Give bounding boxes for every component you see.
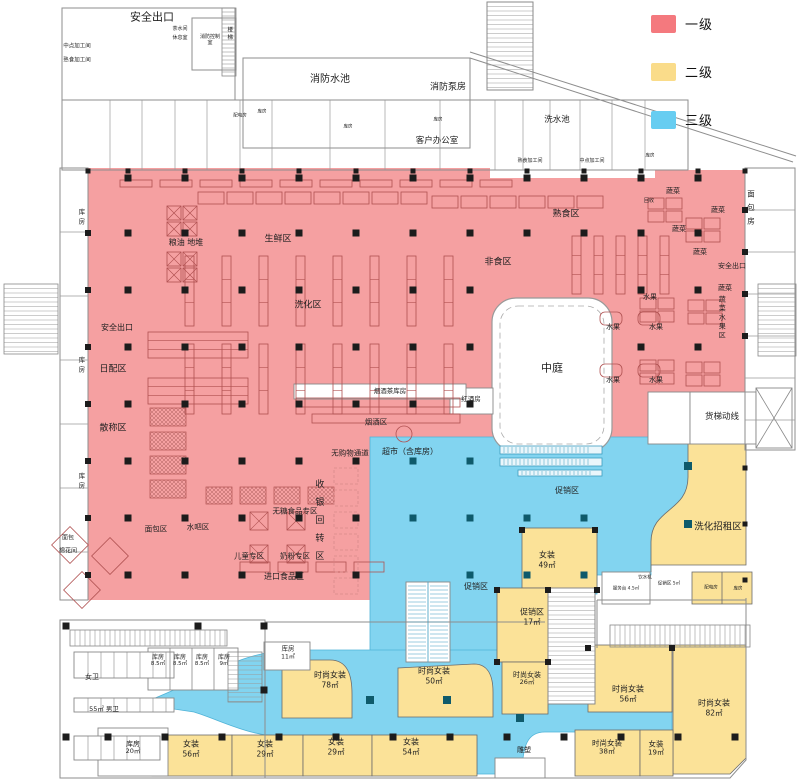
column (296, 401, 303, 408)
column (592, 527, 598, 533)
column (86, 169, 91, 174)
column (516, 714, 524, 722)
column (354, 169, 359, 174)
shop-promo17 (497, 588, 548, 662)
column (239, 344, 246, 351)
column (410, 230, 417, 237)
shop-ssnz26 (502, 662, 548, 714)
deco (150, 408, 186, 426)
column (182, 515, 189, 522)
column (742, 249, 748, 255)
column (684, 462, 692, 470)
column (638, 344, 645, 351)
column (494, 659, 500, 665)
column (125, 287, 132, 294)
deco (150, 480, 186, 498)
column (353, 401, 360, 408)
column (296, 344, 303, 351)
column (695, 344, 702, 351)
deco (206, 487, 232, 504)
legend-label-level-2: 二级 (685, 62, 713, 81)
column (261, 623, 268, 630)
column (519, 527, 525, 533)
column (669, 645, 675, 651)
legend: 一级 二级 三级 (651, 14, 713, 129)
column (525, 169, 530, 174)
atrium-courtyard (492, 298, 612, 452)
column (182, 175, 189, 182)
column (467, 572, 474, 579)
column (467, 230, 474, 237)
column (585, 645, 591, 651)
column (296, 175, 303, 182)
column (85, 230, 91, 236)
column (545, 587, 551, 593)
shop-ssnz82 (673, 645, 746, 774)
shop-ssnz38 (575, 730, 640, 776)
column (353, 458, 360, 465)
column (524, 572, 531, 579)
column (239, 175, 246, 182)
column (594, 587, 600, 593)
column (297, 169, 302, 174)
column (182, 287, 189, 294)
column (468, 169, 473, 174)
column (582, 169, 587, 174)
column (183, 169, 188, 174)
shop-nz29b (303, 735, 372, 776)
shop-ssnz50 (398, 664, 493, 717)
column (63, 623, 70, 630)
column (126, 169, 131, 174)
deco (52, 527, 89, 564)
storeroom-11-box (264, 642, 310, 670)
column (545, 659, 551, 665)
column (467, 458, 474, 465)
column (353, 515, 360, 522)
freight-route-box (690, 392, 756, 444)
column (182, 458, 189, 465)
column (581, 175, 588, 182)
legend-swatch-level-1 (651, 15, 676, 33)
deco (150, 456, 186, 474)
column (390, 734, 397, 741)
column (581, 572, 588, 579)
deco (308, 487, 334, 504)
column (695, 287, 702, 294)
column (638, 287, 645, 294)
escalator (500, 446, 602, 454)
wc-stall-row-2 (74, 698, 174, 712)
column (85, 458, 91, 464)
column (638, 175, 645, 182)
column (410, 175, 417, 182)
column (581, 515, 588, 522)
column (695, 230, 702, 237)
column (467, 175, 474, 182)
column (467, 515, 474, 522)
column (743, 466, 748, 471)
column (504, 734, 511, 741)
tobacco-storeroom-box (294, 384, 466, 399)
column (353, 572, 360, 579)
column (524, 175, 531, 182)
column (239, 515, 246, 522)
deco (274, 487, 300, 504)
column (467, 287, 474, 294)
column (219, 734, 226, 741)
deco (150, 432, 186, 450)
column (638, 230, 645, 237)
sculpture-recess (495, 758, 545, 778)
column (353, 287, 360, 294)
column (675, 734, 682, 741)
floor-plan: 一级 二级 三级 安全出口中点加工间熟食加工间茶水间休息室消防控制室楼梯消防水池… (0, 0, 800, 780)
column (333, 734, 340, 741)
wc-stall-row-1 (74, 652, 174, 678)
column (411, 169, 416, 174)
column (125, 230, 132, 237)
column (240, 169, 245, 174)
column (618, 734, 625, 741)
shop-nz19 (640, 730, 673, 776)
column (85, 572, 91, 578)
stair (4, 284, 58, 354)
escalator (500, 458, 602, 466)
column (581, 230, 588, 237)
column (296, 572, 303, 579)
column (743, 522, 748, 527)
service-room-box (602, 572, 650, 604)
column (467, 401, 474, 408)
column (561, 734, 568, 741)
column (524, 515, 531, 522)
column (239, 458, 246, 465)
column (443, 696, 451, 704)
column (276, 734, 283, 741)
column (125, 344, 132, 351)
column (742, 333, 748, 339)
column (261, 687, 268, 694)
column (353, 344, 360, 351)
cart-room-box (648, 392, 690, 444)
legend-label-level-1: 一级 (685, 14, 713, 33)
deco (240, 487, 266, 504)
column (524, 230, 531, 237)
column (195, 623, 202, 630)
column (696, 169, 701, 174)
shop-nz29a (232, 735, 303, 776)
column (410, 287, 417, 294)
column (85, 401, 91, 407)
column (239, 572, 246, 579)
column (639, 169, 644, 174)
column (125, 175, 132, 182)
column (125, 572, 132, 579)
column (742, 207, 748, 213)
column (296, 287, 303, 294)
column (467, 344, 474, 351)
column (366, 696, 374, 704)
column (494, 587, 500, 593)
column (162, 734, 169, 741)
column (182, 344, 189, 351)
column (410, 401, 417, 408)
escalator (518, 470, 602, 476)
column (732, 734, 739, 741)
column (410, 458, 417, 465)
column (296, 230, 303, 237)
column (85, 515, 91, 521)
column (85, 287, 91, 293)
legend-swatch-level-3 (651, 111, 676, 129)
column (85, 344, 91, 350)
legend-row-level-3: 三级 (651, 110, 713, 129)
column (239, 230, 246, 237)
stair (70, 630, 227, 646)
column (105, 734, 112, 741)
column (410, 344, 417, 351)
column (296, 458, 303, 465)
column (296, 515, 303, 522)
column (125, 515, 132, 522)
column (239, 401, 246, 408)
shop-ssnz56 (588, 645, 672, 712)
wc-stall-row-3 (74, 736, 160, 760)
column (353, 230, 360, 237)
column (743, 578, 748, 583)
column (182, 230, 189, 237)
shop-nz54 (372, 735, 477, 776)
column (743, 169, 748, 174)
column (742, 291, 748, 297)
column (125, 458, 132, 465)
shop-nz49 (522, 528, 597, 588)
column (239, 287, 246, 294)
column (684, 520, 692, 528)
legend-row-level-1: 一级 (651, 14, 713, 33)
legend-swatch-level-2 (651, 63, 676, 81)
legend-label-level-3: 三级 (685, 110, 713, 129)
column (182, 401, 189, 408)
column (447, 734, 454, 741)
column (125, 401, 132, 408)
column (410, 515, 417, 522)
column (63, 734, 70, 741)
column (695, 175, 702, 182)
column (353, 175, 360, 182)
legend-row-level-2: 二级 (651, 62, 713, 81)
column (182, 572, 189, 579)
